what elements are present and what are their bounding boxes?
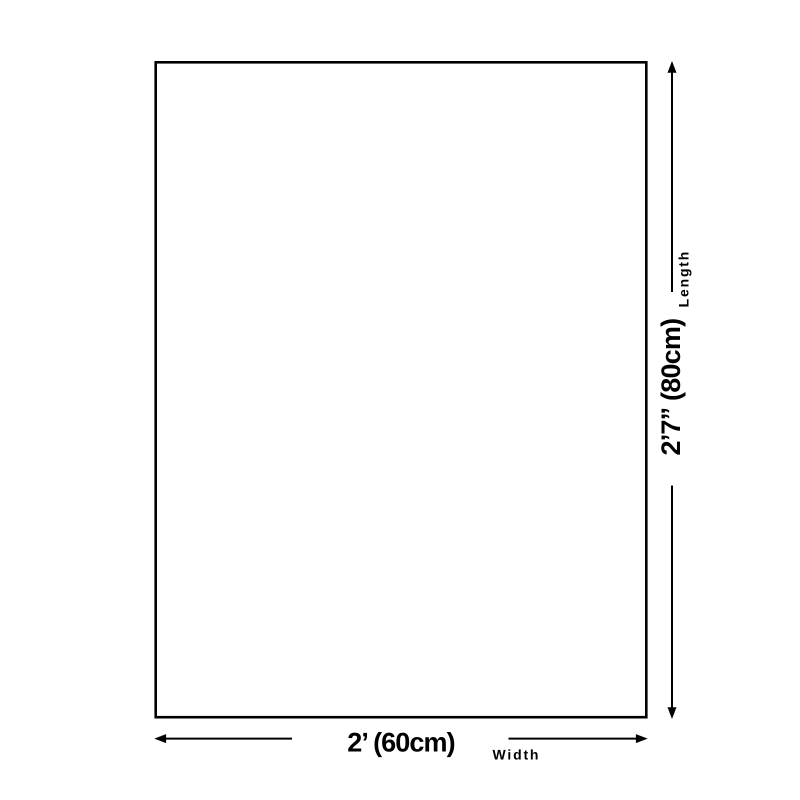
svg-text:2’ (60cm): 2’ (60cm)	[347, 727, 454, 757]
svg-text:Length: Length	[676, 250, 692, 307]
svg-text:Width: Width	[493, 746, 541, 762]
svg-text:2’7” (80cm): 2’7” (80cm)	[656, 319, 686, 456]
